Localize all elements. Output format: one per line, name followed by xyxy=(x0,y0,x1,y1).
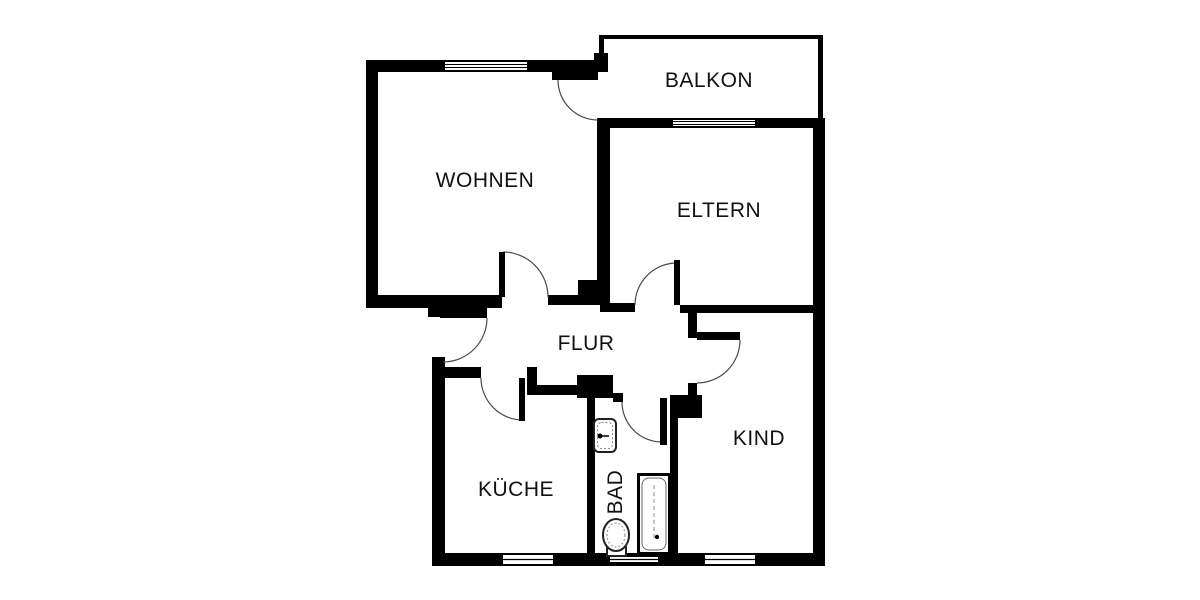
wall xyxy=(600,303,635,312)
wall xyxy=(813,118,825,566)
wall xyxy=(432,357,445,553)
balcony-wall xyxy=(599,35,604,57)
wall xyxy=(578,280,610,305)
room-label-kueche: KÜCHE xyxy=(478,478,554,502)
wall xyxy=(553,553,608,566)
wall xyxy=(548,295,580,305)
door-leaf xyxy=(697,332,740,340)
wall xyxy=(445,367,481,378)
door-leaf xyxy=(440,308,487,318)
wall xyxy=(688,313,697,338)
door-leaf xyxy=(552,72,598,80)
floor-plan-svg xyxy=(0,0,1200,600)
door-swing-arc xyxy=(697,340,740,383)
wall xyxy=(432,553,503,566)
wall xyxy=(670,418,678,553)
door-swing-arc xyxy=(635,263,677,305)
wall xyxy=(428,303,442,317)
door-leaf xyxy=(674,260,680,305)
wall xyxy=(366,60,445,72)
door-swing-arc xyxy=(622,402,662,442)
balcony-wall xyxy=(599,35,823,39)
door-swing-arc xyxy=(558,80,598,120)
wall xyxy=(613,393,623,402)
door-swing-arc xyxy=(481,378,523,420)
room-label-kind: KIND xyxy=(733,427,785,451)
door-swing-arc xyxy=(443,318,487,362)
door-swing-arc xyxy=(503,252,548,297)
wall xyxy=(577,375,613,398)
floor-plan-canvas: BALKON WOHNEN ELTERN FLUR KÜCHE BAD KIND xyxy=(0,0,1200,600)
wall xyxy=(680,305,813,313)
wall xyxy=(597,118,610,283)
room-label-eltern: ELTERN xyxy=(677,199,761,223)
room-label-wohnen: WOHNEN xyxy=(436,169,535,193)
door-leaf xyxy=(519,378,525,421)
balcony-wall xyxy=(818,35,823,120)
wall xyxy=(755,118,820,128)
room-label-balkon: BALKON xyxy=(665,69,753,93)
bathtub-drain xyxy=(655,535,659,539)
wall xyxy=(366,60,378,308)
room-label-bad: BAD xyxy=(604,470,628,515)
door-leaf xyxy=(660,398,667,445)
door-leaf xyxy=(499,252,505,297)
wall xyxy=(670,395,702,418)
room-label-flur: FLUR xyxy=(558,332,615,356)
